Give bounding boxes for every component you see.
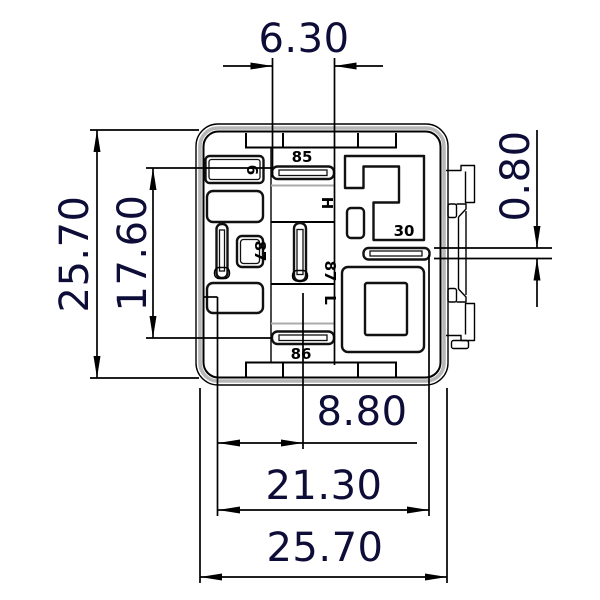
left-blade-slot [215,224,230,279]
dim-label-bottom-25-70: 25.70 [266,525,383,571]
drawing-canvas: 6.30 25.70 17.60 0.80 8.80 [0,0,600,600]
dim-label-6-30: 6.30 [258,16,349,62]
dim-right-0-80: 0.80 [434,130,552,307]
pin-85-slot [272,167,334,180]
pin-label-6: 6 [243,165,261,175]
large-square-cavity [342,267,424,352]
relay-body [196,124,448,385]
small-right-cavity [347,208,364,238]
dim-label-8-80: 8.80 [316,389,407,435]
pin-label-30: 30 [394,222,415,240]
pin-30-slot [364,248,430,260]
pin-label-l: L [321,295,339,305]
dim-label-0-80: 0.80 [493,130,539,221]
upper-left-cavity [207,191,263,222]
pin-label-87-center: 87 [321,261,339,282]
dim-label-17-60: 17.60 [110,194,156,311]
pin-label-87-left: 87 [251,241,269,262]
body-outer-outline [196,124,448,385]
center-blade-slot [293,223,308,281]
top-notch-band [246,133,396,148]
dim-label-left-25-70: 25.70 [52,195,98,312]
lower-left-cavity [207,283,263,313]
pin-label-85: 85 [292,148,313,166]
dim-label-21-30: 21.30 [265,463,382,509]
relay-dimension-drawing: 6.30 25.70 17.60 0.80 8.80 [0,0,600,600]
bottom-notch-band [246,363,396,378]
pin-label-86: 86 [291,345,312,363]
side-bracket-profile [446,166,475,349]
pin-label-h: H [318,197,336,210]
